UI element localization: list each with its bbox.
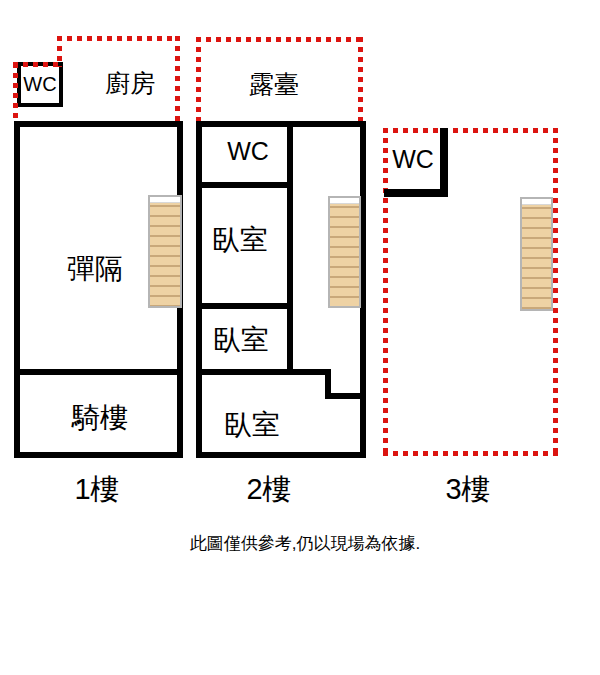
- floor2-staircase: [328, 196, 361, 308]
- floor1-divider-wall: [16, 369, 181, 375]
- floor3-dotted-top: [383, 128, 558, 133]
- floor3-dotted-left: [383, 128, 388, 456]
- floor2-wc-bottom-wall: [199, 182, 293, 188]
- floor2-wc-label: WC: [188, 138, 308, 166]
- floor3-dotted-right: [553, 128, 558, 456]
- floor2-bedroom3-top-wall: [199, 369, 331, 375]
- floor1-dotted-over-wc: [13, 62, 63, 67]
- disclaimer-text: 此圖僅供參考,仍以現場為依據.: [115, 532, 495, 555]
- floor1-kitchen-label: 廚房: [70, 70, 190, 98]
- floor2-terrace-dotted-right: [358, 37, 363, 124]
- floor1-caption: 1樓: [37, 474, 157, 506]
- floor2-terrace-dotted-left: [196, 37, 201, 124]
- floor2-terrace-dotted-top: [196, 37, 363, 42]
- floor3-wc-bottom-wall: [384, 189, 448, 197]
- floor2-step-horizontal-wall: [325, 393, 363, 399]
- floor2-bedroom1-label: 臥室: [180, 225, 300, 256]
- floor2-bedroom-divider-wall: [199, 303, 293, 309]
- floor1-dotted-left: [13, 63, 18, 123]
- floor-plan-canvas: WC 廚房 彈隔 騎樓 露臺 WC 臥室 臥室 臥室 WC 1樓: [0, 0, 600, 675]
- floor3-caption: 3樓: [408, 474, 528, 506]
- floor2-caption: 2樓: [209, 474, 329, 506]
- floor2-terrace-label: 露臺: [214, 71, 334, 99]
- floor2-staircase-landing: [330, 198, 359, 204]
- floor2-bedroom2-label: 臥室: [181, 325, 301, 356]
- floor1-wc-room: WC: [17, 62, 63, 107]
- floor1-arcade-label: 騎樓: [40, 403, 160, 434]
- floor3-wc-label: WC: [353, 146, 473, 174]
- floor1-wc-label: WC: [23, 73, 56, 96]
- floor1-staircase-landing: [150, 197, 180, 203]
- floor3-staircase-landing: [522, 199, 551, 205]
- floor2-bedroom3-label: 臥室: [192, 410, 312, 441]
- floor3-dotted-bottom: [383, 451, 558, 456]
- floor1-staircase: [148, 195, 182, 308]
- floor3-staircase: [520, 197, 553, 311]
- floor1-dotted-top: [57, 36, 180, 41]
- floor1-main-room-label: 彈隔: [35, 254, 155, 285]
